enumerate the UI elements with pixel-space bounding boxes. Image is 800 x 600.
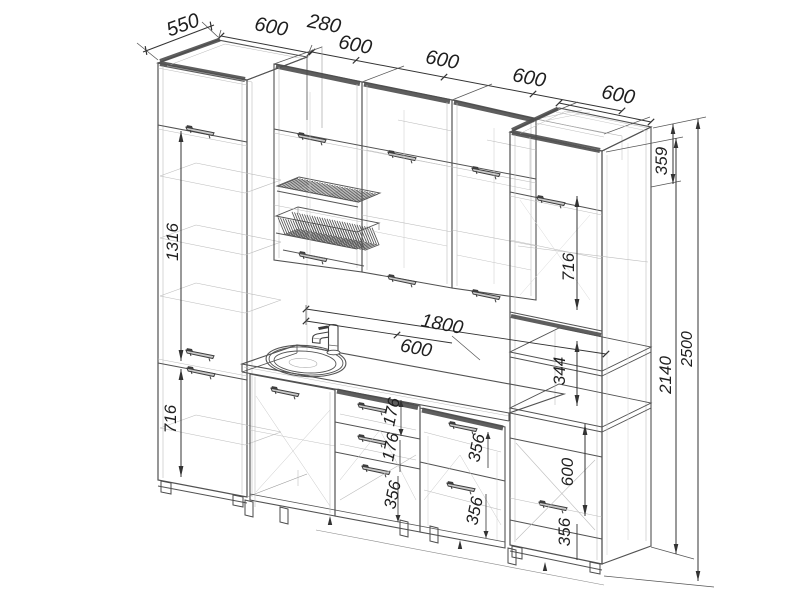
svg-text:2500: 2500 bbox=[679, 331, 696, 368]
svg-text:716: 716 bbox=[559, 252, 578, 281]
svg-text:2140: 2140 bbox=[656, 356, 675, 395]
svg-text:716: 716 bbox=[161, 404, 180, 433]
svg-text:359: 359 bbox=[652, 146, 671, 175]
svg-text:1316: 1316 bbox=[163, 223, 182, 261]
svg-text:600: 600 bbox=[558, 457, 577, 486]
svg-text:356: 356 bbox=[555, 517, 574, 546]
svg-text:344: 344 bbox=[550, 357, 569, 385]
